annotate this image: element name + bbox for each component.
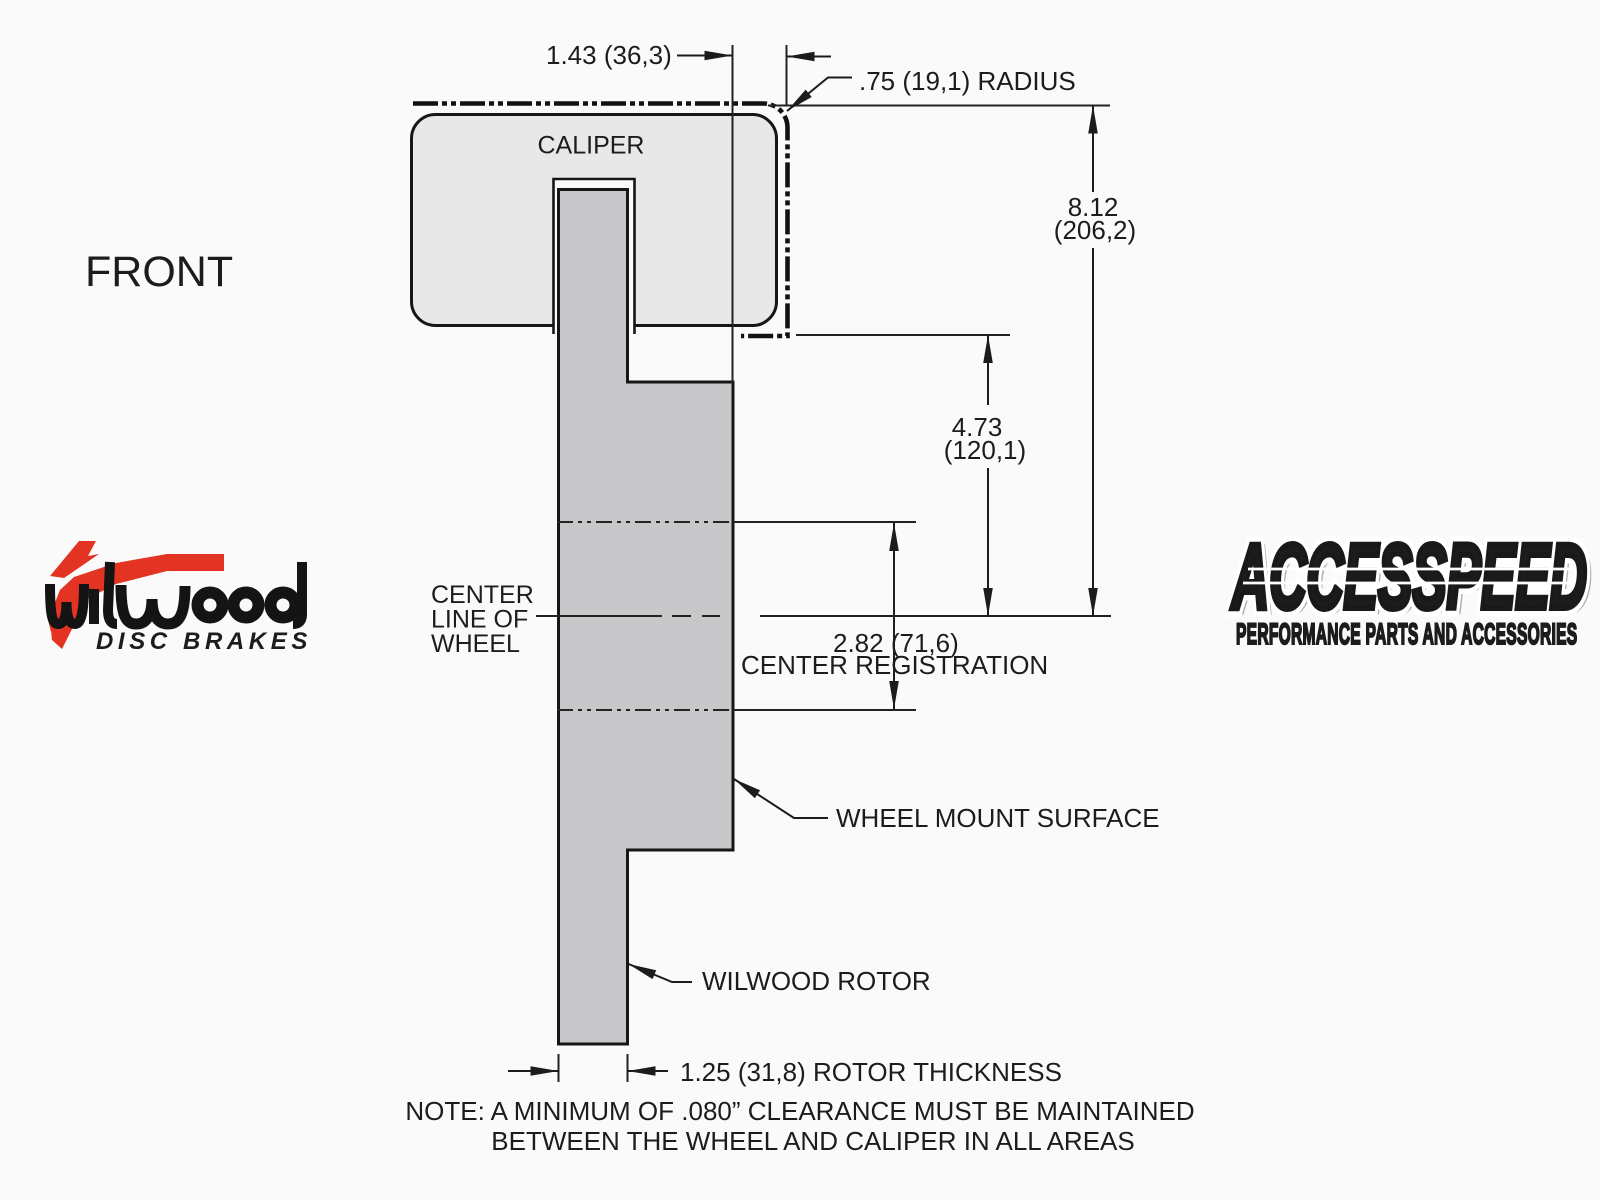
svg-text:WHEEL: WHEEL — [431, 630, 520, 658]
svg-text:PERFORMANCE PARTS AND ACCESSOR: PERFORMANCE PARTS AND ACCESSORIES — [1236, 618, 1577, 652]
svg-text:1.43 (36,3): 1.43 (36,3) — [546, 40, 672, 70]
svg-text:.75 (19,1) RADIUS: .75 (19,1) RADIUS — [859, 66, 1076, 96]
svg-text:WHEEL MOUNT SURFACE: WHEEL MOUNT SURFACE — [836, 803, 1160, 833]
svg-text:1.25 (31,8) ROTOR THICKNESS: 1.25 (31,8) ROTOR THICKNESS — [680, 1057, 1062, 1087]
svg-text:(206,2): (206,2) — [1054, 215, 1136, 245]
svg-text:NOTE: A MINIMUM OF .080” CLEAR: NOTE: A MINIMUM OF .080” CLEARANCE MUST … — [405, 1096, 1194, 1126]
svg-text:ACCESSPEED: ACCESSPEED — [1231, 525, 1587, 627]
svg-text:CENTER REGISTRATION: CENTER REGISTRATION — [741, 650, 1048, 680]
svg-text:FRONT: FRONT — [85, 248, 233, 296]
svg-text:BETWEEN THE WHEEL AND CALIPER: BETWEEN THE WHEEL AND CALIPER IN ALL ARE… — [491, 1126, 1134, 1156]
svg-text:CALIPER: CALIPER — [538, 132, 645, 160]
svg-text:DISC BRAKES: DISC BRAKES — [96, 628, 312, 655]
svg-text:(120,1): (120,1) — [944, 435, 1026, 465]
svg-text:WILWOOD ROTOR: WILWOOD ROTOR — [702, 966, 931, 996]
